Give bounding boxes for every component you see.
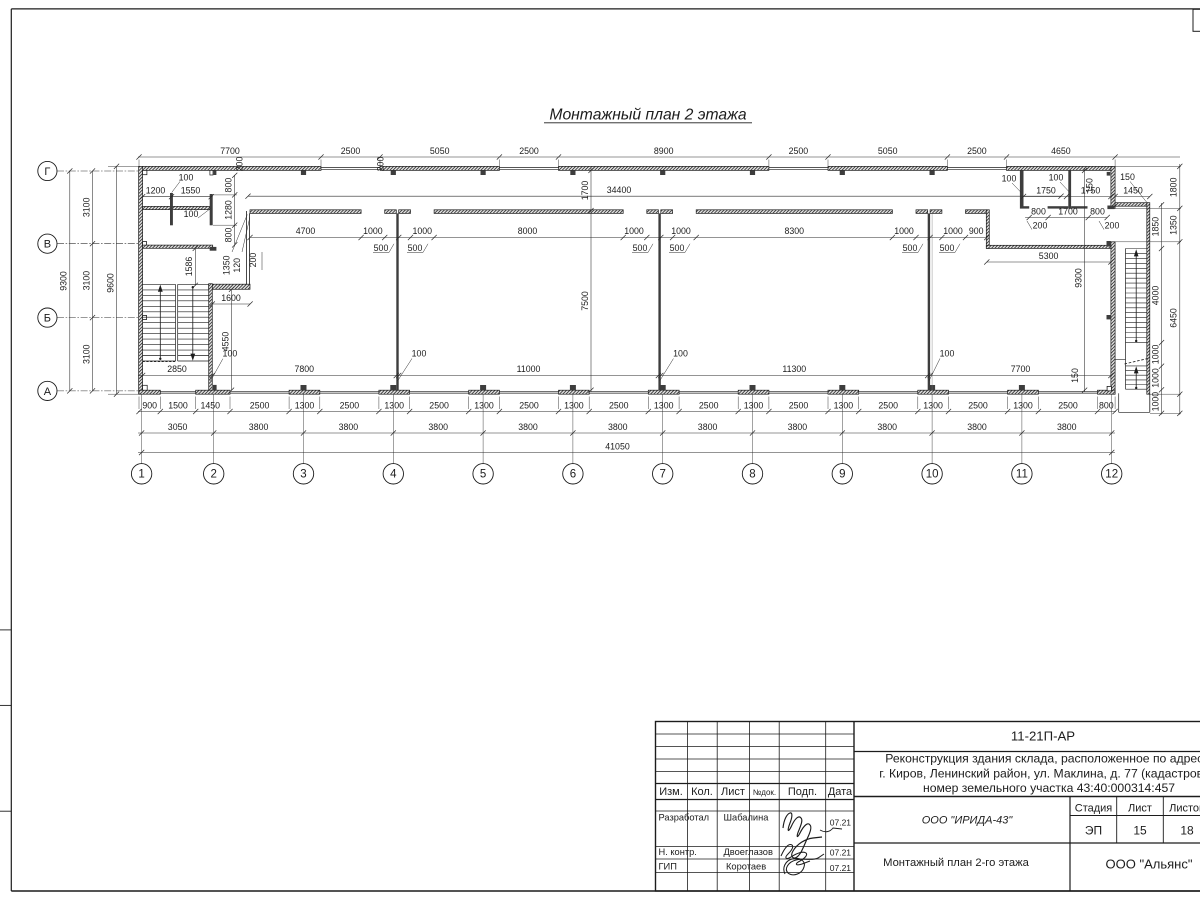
- svg-text:Б: Б: [44, 313, 51, 325]
- svg-text:900: 900: [969, 226, 984, 236]
- svg-text:800: 800: [224, 178, 234, 193]
- svg-text:1000: 1000: [1150, 345, 1160, 365]
- svg-text:3800: 3800: [518, 422, 538, 432]
- svg-text:5300: 5300: [1039, 251, 1059, 261]
- svg-text:500: 500: [408, 243, 423, 253]
- svg-text:07.21: 07.21: [830, 848, 852, 858]
- svg-text:5050: 5050: [878, 146, 898, 156]
- svg-text:1500: 1500: [168, 401, 188, 411]
- svg-text:100: 100: [940, 349, 955, 359]
- svg-text:2850: 2850: [167, 364, 187, 374]
- svg-text:1350: 1350: [1169, 215, 1179, 235]
- svg-text:А: А: [44, 386, 52, 398]
- svg-text:100: 100: [673, 349, 688, 359]
- svg-text:3100: 3100: [81, 344, 91, 364]
- svg-text:2500: 2500: [250, 401, 270, 411]
- svg-text:Шабалина: Шабалина: [724, 813, 770, 823]
- svg-text:9300: 9300: [59, 271, 69, 291]
- svg-text:1000: 1000: [671, 226, 691, 236]
- svg-text:3800: 3800: [877, 422, 897, 432]
- svg-text:2500: 2500: [789, 146, 809, 156]
- svg-text:120: 120: [232, 258, 242, 273]
- svg-text:1300: 1300: [295, 401, 315, 411]
- svg-text:№док.: №док.: [753, 788, 776, 797]
- svg-text:1700: 1700: [580, 181, 590, 201]
- svg-text:3100: 3100: [81, 197, 91, 217]
- svg-text:2500: 2500: [609, 401, 629, 411]
- svg-text:1000: 1000: [624, 226, 644, 236]
- svg-text:4000: 4000: [1150, 286, 1160, 306]
- svg-text:2500: 2500: [789, 401, 809, 411]
- svg-text:3800: 3800: [967, 422, 987, 432]
- svg-text:8900: 8900: [654, 146, 674, 156]
- svg-text:1000: 1000: [1150, 392, 1160, 412]
- svg-text:1350: 1350: [222, 255, 232, 275]
- svg-text:6: 6: [570, 469, 576, 481]
- svg-text:900: 900: [142, 401, 157, 411]
- svg-text:1300: 1300: [744, 401, 764, 411]
- svg-text:3800: 3800: [788, 422, 808, 432]
- svg-text:7500: 7500: [580, 291, 590, 311]
- svg-text:500: 500: [374, 243, 389, 253]
- svg-text:1000: 1000: [363, 226, 383, 236]
- svg-text:В: В: [44, 239, 51, 251]
- svg-text:11300: 11300: [782, 364, 806, 374]
- svg-text:1300: 1300: [1013, 401, 1033, 411]
- svg-text:4550: 4550: [220, 332, 230, 352]
- svg-text:Монтажный план 2 этажа: Монтажный план 2 этажа: [549, 107, 746, 124]
- svg-text:07.21: 07.21: [830, 863, 852, 873]
- svg-text:800: 800: [1090, 207, 1105, 217]
- svg-text:1586: 1586: [184, 257, 194, 277]
- svg-text:Г: Г: [44, 166, 50, 178]
- svg-text:Лист: Лист: [721, 786, 745, 798]
- svg-text:ООО "Альянс": ООО "Альянс": [1106, 857, 1193, 872]
- svg-text:4650: 4650: [1051, 146, 1071, 156]
- svg-text:1800: 1800: [1169, 177, 1179, 197]
- svg-text:1550: 1550: [181, 186, 201, 196]
- svg-text:500: 500: [633, 243, 648, 253]
- svg-text:номер земельного участка 43:40: номер земельного участка 43:40:000314:45…: [923, 781, 1175, 795]
- svg-text:Коротаев: Коротаев: [726, 861, 766, 871]
- svg-text:3800: 3800: [428, 422, 448, 432]
- svg-text:1000: 1000: [413, 226, 433, 236]
- svg-text:11000: 11000: [517, 364, 541, 374]
- svg-text:3800: 3800: [1057, 422, 1077, 432]
- svg-text:5050: 5050: [430, 146, 450, 156]
- svg-text:1000: 1000: [1150, 368, 1160, 388]
- svg-text:4: 4: [390, 469, 397, 481]
- svg-text:3800: 3800: [339, 422, 359, 432]
- svg-text:100: 100: [184, 209, 199, 219]
- svg-text:Кол.: Кол.: [691, 786, 713, 798]
- svg-text:Стадия: Стадия: [1075, 803, 1113, 815]
- svg-text:9: 9: [839, 469, 845, 481]
- svg-text:1000: 1000: [894, 226, 914, 236]
- svg-text:2500: 2500: [340, 401, 360, 411]
- svg-text:3800: 3800: [249, 422, 269, 432]
- svg-text:1450: 1450: [201, 401, 221, 411]
- svg-text:4700: 4700: [296, 226, 316, 236]
- svg-text:9600: 9600: [105, 273, 115, 293]
- svg-text:2500: 2500: [878, 401, 898, 411]
- svg-text:2500: 2500: [429, 401, 449, 411]
- svg-text:150: 150: [1120, 172, 1135, 182]
- svg-text:1600: 1600: [221, 293, 241, 303]
- svg-text:2500: 2500: [341, 146, 361, 156]
- svg-text:1700: 1700: [1058, 207, 1078, 217]
- svg-text:1300: 1300: [834, 401, 854, 411]
- svg-text:Подп.: Подп.: [788, 786, 817, 798]
- svg-text:г. Киров, Ленинский район, ул.: г. Киров, Ленинский район, ул. Маклина, …: [879, 766, 1200, 780]
- svg-text:2500: 2500: [968, 401, 988, 411]
- svg-text:Лист: Лист: [1128, 803, 1152, 815]
- svg-text:200: 200: [248, 253, 258, 268]
- svg-text:100: 100: [1049, 173, 1064, 183]
- svg-text:200: 200: [1105, 221, 1120, 231]
- svg-text:3050: 3050: [168, 422, 188, 432]
- svg-text:5: 5: [480, 469, 486, 481]
- svg-text:Двоеглазов: Двоеглазов: [724, 847, 773, 857]
- svg-text:Реконструкция здания склада, р: Реконструкция здания склада, расположенн…: [885, 752, 1200, 766]
- svg-text:34400: 34400: [607, 185, 632, 195]
- svg-text:2500: 2500: [1058, 401, 1078, 411]
- svg-text:3100: 3100: [81, 271, 91, 291]
- svg-text:8000: 8000: [518, 226, 538, 236]
- svg-text:11: 11: [1016, 469, 1028, 481]
- svg-text:2500: 2500: [967, 146, 987, 156]
- svg-text:1300: 1300: [474, 401, 494, 411]
- svg-text:150: 150: [1070, 368, 1080, 383]
- svg-text:500: 500: [940, 243, 955, 253]
- svg-text:Дата: Дата: [828, 786, 853, 798]
- svg-text:200: 200: [235, 157, 245, 172]
- svg-text:500: 500: [903, 243, 918, 253]
- svg-text:3800: 3800: [608, 422, 628, 432]
- svg-text:150: 150: [1085, 178, 1095, 193]
- svg-text:1750: 1750: [1036, 185, 1056, 195]
- svg-text:3800: 3800: [698, 422, 718, 432]
- svg-text:800: 800: [224, 228, 234, 243]
- svg-text:18: 18: [1180, 824, 1194, 838]
- svg-text:7700: 7700: [220, 146, 240, 156]
- svg-text:9300: 9300: [1073, 268, 1083, 288]
- svg-text:1300: 1300: [564, 401, 584, 411]
- svg-text:100: 100: [179, 172, 194, 182]
- svg-text:800: 800: [1099, 401, 1114, 411]
- svg-text:Н. контр.: Н. контр.: [659, 847, 697, 857]
- svg-text:2: 2: [210, 469, 216, 481]
- svg-text:100: 100: [1002, 174, 1017, 184]
- svg-text:7800: 7800: [295, 364, 315, 374]
- svg-text:15: 15: [1133, 824, 1147, 838]
- svg-text:1280: 1280: [224, 200, 234, 220]
- svg-text:3: 3: [300, 469, 306, 481]
- svg-text:8300: 8300: [785, 226, 805, 236]
- svg-text:ЭП: ЭП: [1085, 824, 1102, 838]
- svg-text:1: 1: [138, 469, 144, 481]
- svg-text:800: 800: [1031, 207, 1046, 217]
- svg-text:100: 100: [412, 349, 427, 359]
- svg-text:7700: 7700: [1011, 364, 1031, 374]
- svg-text:1300: 1300: [654, 401, 674, 411]
- svg-text:Разработал: Разработал: [659, 813, 710, 823]
- svg-text:1300: 1300: [384, 401, 404, 411]
- svg-text:6450: 6450: [1169, 308, 1179, 328]
- svg-text:500: 500: [670, 243, 685, 253]
- svg-text:ГИП: ГИП: [659, 861, 677, 871]
- svg-text:2500: 2500: [519, 146, 539, 156]
- svg-text:1850: 1850: [1150, 217, 1160, 237]
- svg-text:1000: 1000: [943, 226, 963, 236]
- svg-text:Изм.: Изм.: [659, 786, 683, 798]
- svg-text:1200: 1200: [146, 186, 166, 196]
- svg-text:1300: 1300: [923, 401, 943, 411]
- svg-text:Монтажный план 2-го этажа: Монтажный план 2-го этажа: [883, 857, 1029, 869]
- svg-text:200: 200: [376, 157, 386, 172]
- svg-text:8: 8: [749, 469, 755, 481]
- svg-text:10: 10: [926, 469, 939, 481]
- svg-text:200: 200: [1033, 221, 1048, 231]
- svg-text:7: 7: [659, 469, 665, 481]
- svg-text:ООО "ИРИДА-43": ООО "ИРИДА-43": [922, 815, 1014, 827]
- svg-text:2500: 2500: [519, 401, 539, 411]
- svg-text:11-21П-АР: 11-21П-АР: [1011, 729, 1075, 744]
- svg-text:2500: 2500: [699, 401, 719, 411]
- svg-text:07.21: 07.21: [830, 817, 852, 827]
- svg-text:41050: 41050: [605, 442, 630, 452]
- svg-text:12: 12: [1105, 469, 1118, 481]
- svg-text:Листов: Листов: [1169, 803, 1200, 815]
